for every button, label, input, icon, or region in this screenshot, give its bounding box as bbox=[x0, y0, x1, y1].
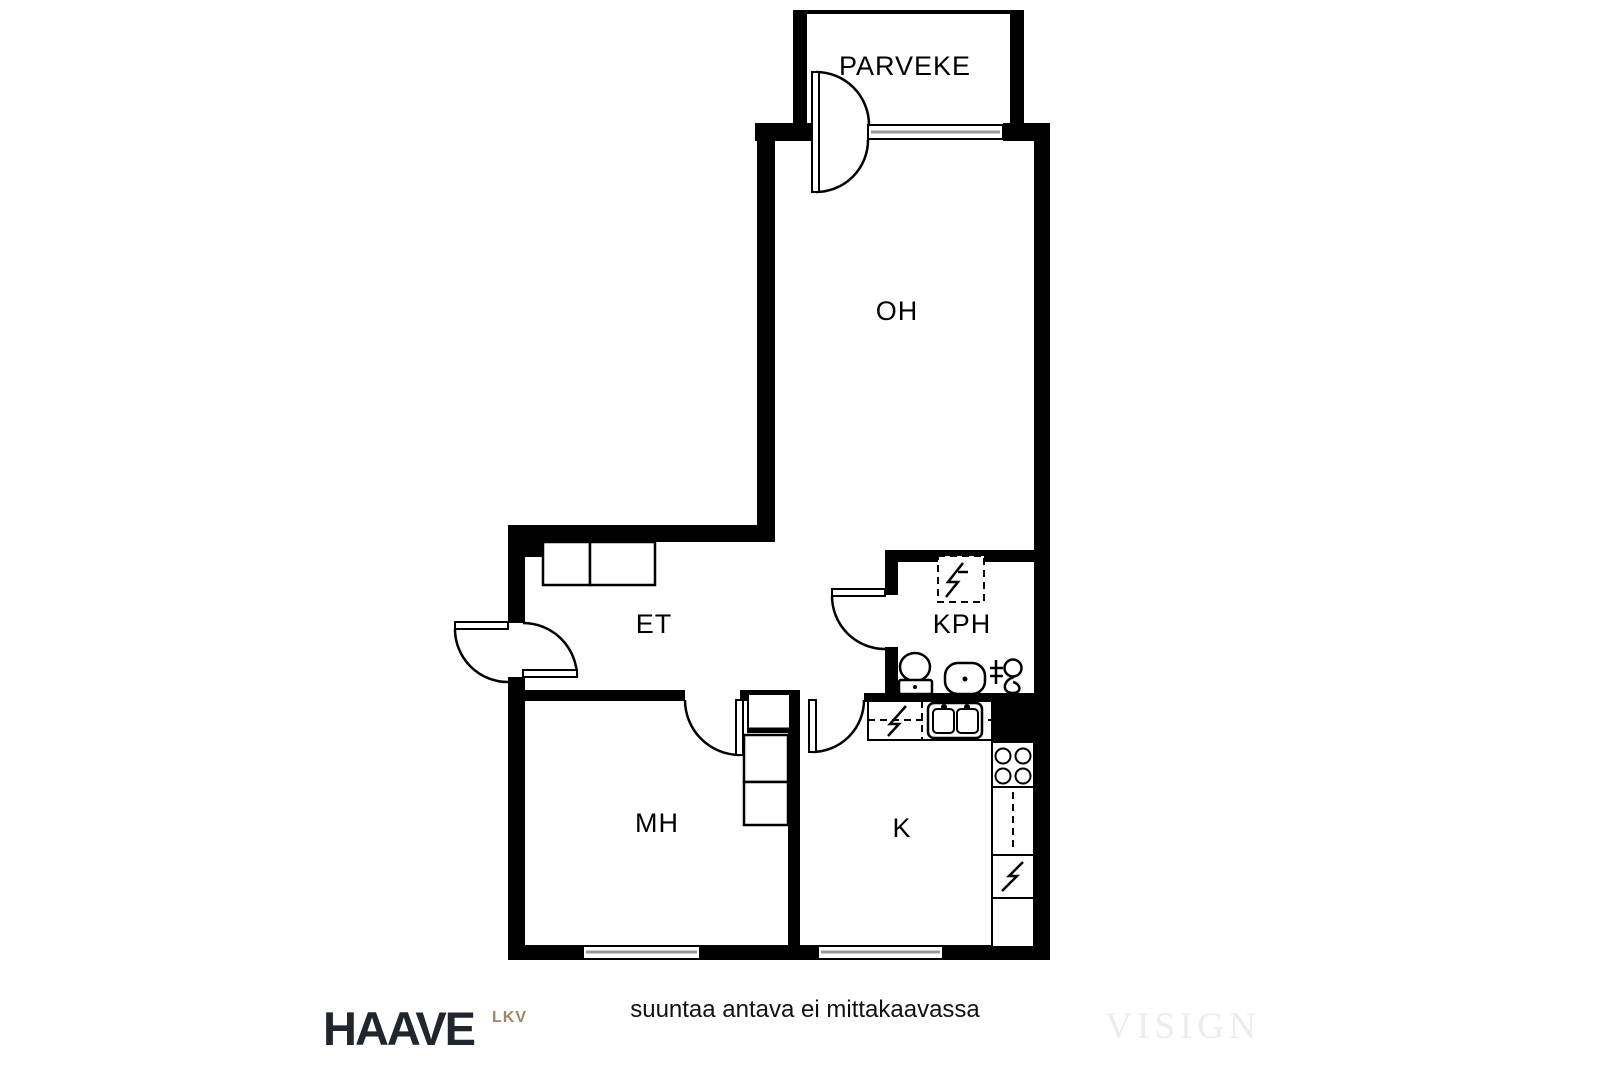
wardrobe-icon bbox=[744, 782, 788, 825]
wall-right-exterior bbox=[1034, 123, 1050, 960]
room-label-balcony: PARVEKE bbox=[839, 51, 971, 81]
watermark: VISIGN bbox=[1105, 1006, 1260, 1047]
light-partition-box bbox=[748, 694, 790, 732]
window-oh-top bbox=[868, 125, 1003, 139]
wardrobe-icon bbox=[744, 735, 788, 782]
window-mh-bottom bbox=[583, 946, 700, 959]
balcony-railing bbox=[793, 10, 1024, 14]
kitchen-cabinet bbox=[992, 898, 1034, 947]
wall-bottom-2 bbox=[700, 945, 818, 960]
wall-balcony-left bbox=[793, 10, 807, 125]
wall-left-upper bbox=[508, 525, 525, 623]
stove-icon bbox=[992, 742, 1034, 787]
wall-et-step bbox=[525, 542, 543, 557]
kitchen-counter bbox=[868, 701, 992, 740]
wall-kph-left-upper bbox=[885, 550, 898, 595]
refrigerator-icon bbox=[992, 855, 1034, 898]
wall-et-bottom-left bbox=[508, 690, 685, 701]
wall-left-lower bbox=[508, 677, 525, 960]
wall-bottom-1 bbox=[508, 945, 583, 960]
kitchen-sink-icon bbox=[928, 703, 982, 738]
room-label-kitchen: K bbox=[892, 813, 911, 843]
wardrobe-icon bbox=[590, 542, 655, 585]
kitchen-lower-counter bbox=[992, 787, 1034, 855]
toilet-icon bbox=[899, 653, 932, 694]
floor-plan-page: PARVEKE OH ET KPH MH K HAAVE LKV suuntaa… bbox=[0, 0, 1600, 1067]
floor-plan: PARVEKE OH ET KPH MH K HAAVE LKV suuntaa… bbox=[0, 0, 1600, 1067]
wall-oh-left bbox=[757, 123, 775, 542]
wall-kph-left-lower bbox=[885, 647, 898, 700]
room-label-bed: MH bbox=[635, 808, 679, 838]
washbasin-icon bbox=[945, 663, 985, 694]
wall-balcony-right bbox=[1010, 10, 1024, 125]
wall-et-top bbox=[508, 525, 775, 542]
window-k-bottom bbox=[818, 946, 943, 959]
room-label-hall: ET bbox=[636, 609, 673, 639]
room-label-living: OH bbox=[876, 296, 919, 326]
appliance-reservation-icon bbox=[938, 556, 984, 602]
brand-logo: HAAVE bbox=[323, 1002, 475, 1055]
brand-logo-suffix: LKV bbox=[492, 1009, 527, 1026]
disclaimer: suuntaa antava ei mittakaavassa bbox=[630, 996, 980, 1023]
kitchen-shaft-block bbox=[992, 700, 1034, 742]
wardrobe-icon bbox=[543, 542, 590, 585]
room-label-bath: KPH bbox=[933, 609, 992, 639]
